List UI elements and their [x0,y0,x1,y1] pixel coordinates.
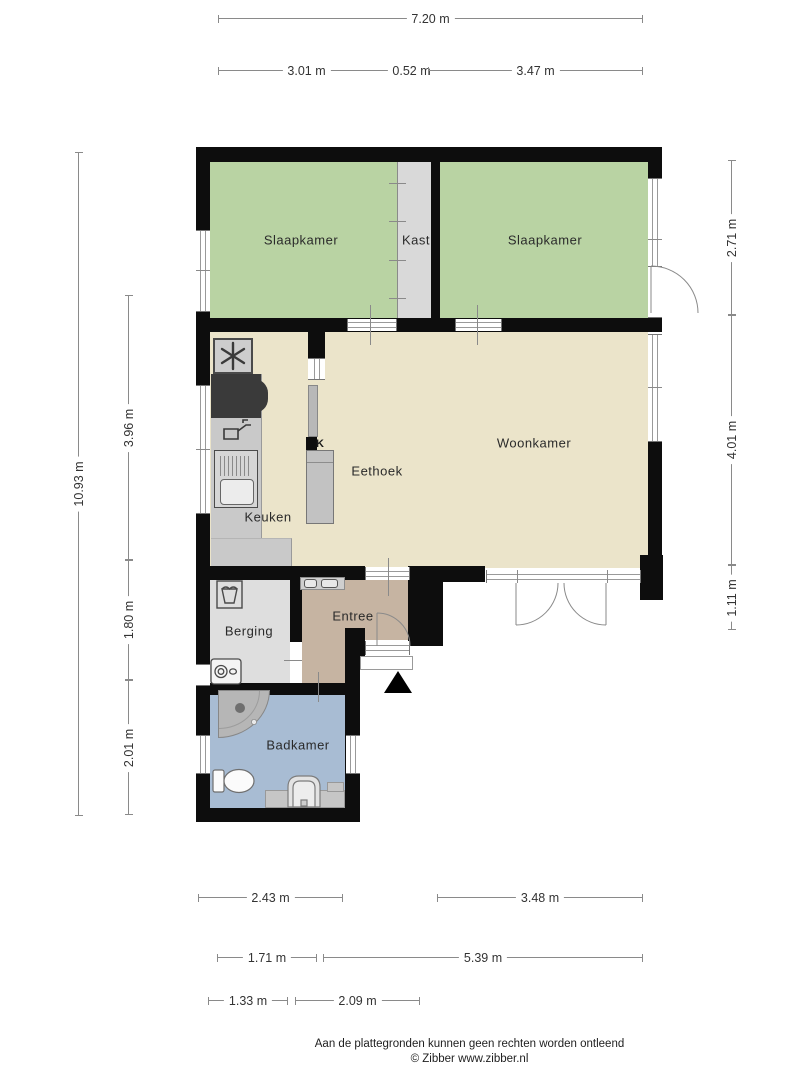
dimension-bottom-r3a: 1.33 m [208,1000,288,1001]
dimension-top-seg2: 0.52 m [395,70,428,71]
dimension-left-seg3: 2.01 m [128,680,129,815]
interior-door-opening [455,319,502,331]
sink-drainer [220,456,252,476]
room-label-woonkamer: Woonkamer [497,436,571,451]
room-label-badkamer: Badkamer [266,738,329,753]
closet-shelf-tick [389,298,406,299]
dimension-left-total: 10.93 m [78,152,79,816]
wall [648,147,662,178]
washbasin-icon [284,772,324,808]
wall [345,646,360,822]
footer-disclaimer: Aan de plattegronden kunnen geen rechten… [130,1038,809,1050]
room-label-slaapkamer-left: Slaapkamer [264,233,338,248]
room-label-keuken: Keuken [244,510,291,525]
french-doors-swing [486,583,639,629]
room-label-entree: Entree [332,609,373,624]
dimension-label: 3.47 m [511,64,559,78]
door-marker [318,672,319,702]
dimension-top-total: 7.20 m [218,18,643,19]
dimension-bottom-r3b: 2.09 m [295,1000,420,1001]
closet-shelf-tick [389,221,406,222]
sink-unit [214,450,258,508]
dimension-bottom-r1b: 3.48 m [437,897,643,898]
room-label-berging: Berging [225,624,273,639]
dimension-bottom-r2a: 1.71 m [217,957,317,958]
dimension-label: 10.93 m [72,456,86,511]
wall [196,332,210,385]
dimension-left-seg1: 3.96 m [128,295,129,560]
bedroom-door-swing [648,264,704,320]
window [196,664,210,686]
extractor-hob-spokes-icon [213,338,253,374]
dimension-label: 2.71 m [725,213,739,261]
closet-shelf-tick [389,260,406,261]
window [196,385,210,514]
dimension-top-seg1: 3.01 m [218,70,395,71]
hall-shelf-item [321,579,338,588]
door-marker [370,305,371,345]
faucet-icon [216,417,256,447]
dimension-label: 1.33 m [224,994,272,1008]
door-marker [284,660,302,661]
dimension-label: 1.71 m [243,951,291,965]
window [648,334,662,442]
wall [196,568,210,664]
hatch-window [308,358,325,380]
hall-cabinet-strip [308,385,318,437]
wall [308,332,325,358]
window [346,735,360,774]
wall [196,512,210,568]
sink-basin [220,479,254,505]
kitchen-counter-foot [211,538,292,567]
dimension-label: 2.09 m [333,994,381,1008]
hall-shelf-item [304,579,317,588]
washing-machine-icon [210,658,242,685]
dimension-bottom-r2b: 5.39 m [323,957,643,958]
room-living-kitchen [210,332,648,568]
floorplan-page: Slaapkamer Kast Slaapkamer Woonkamer Eet… [0,0,809,1080]
front-door-swing [374,610,414,650]
dimension-label: 1.11 m [725,574,739,621]
wall [431,161,440,318]
dimension-label: 3.01 m [282,64,330,78]
entrance-step [360,656,413,670]
dimension-right-seg1: 2.71 m [731,160,732,315]
dining-cabinet [306,450,334,524]
wall [196,808,360,822]
dimension-label: 5.39 m [459,951,507,965]
closet-shelf-tick [389,183,406,184]
wall [196,147,210,230]
interior-door-opening [347,319,397,331]
footer-copyright: © Zibber www.zibber.nl [130,1053,809,1065]
dimension-label: 2.43 m [246,891,294,905]
wall [648,440,662,570]
dimension-label: 4.01 m [725,416,739,464]
window [196,230,210,312]
room-entree-lower [302,640,345,683]
dimension-left-seg2: 1.80 m [128,560,129,680]
wall [196,147,662,162]
window [196,735,210,774]
room-label-slaapkamer-right: Slaapkamer [508,233,582,248]
laundry-basket-icon [216,580,243,609]
room-label-k-closet: K [316,438,324,450]
wall [640,555,663,600]
dimension-label: 3.48 m [516,891,564,905]
dimension-right-seg2: 4.01 m [731,315,732,565]
french-door-frame [486,570,641,583]
door-marker [388,558,389,596]
bath-shelf [327,782,344,792]
room-label-eethoek: Eethoek [351,464,402,479]
door-marker [477,305,478,345]
floorplan: Slaapkamer Kast Slaapkamer Woonkamer Eet… [0,0,809,1080]
dimension-bottom-r1a: 2.43 m [198,897,343,898]
dimension-label: 3.96 m [122,403,136,451]
dimension-right-seg3: 1.11 m [731,565,732,630]
entrance-arrow-icon [384,671,412,693]
toilet-icon [212,766,256,796]
room-label-kast: Kast [402,233,430,248]
shower-drain-icon [218,690,270,738]
dimension-top-seg3: 3.47 m [428,70,643,71]
wall [196,318,662,332]
dimension-label: 2.01 m [122,723,136,771]
window [648,178,662,267]
dimension-label: 7.20 m [406,12,454,26]
dimension-label: 1.80 m [122,596,136,644]
